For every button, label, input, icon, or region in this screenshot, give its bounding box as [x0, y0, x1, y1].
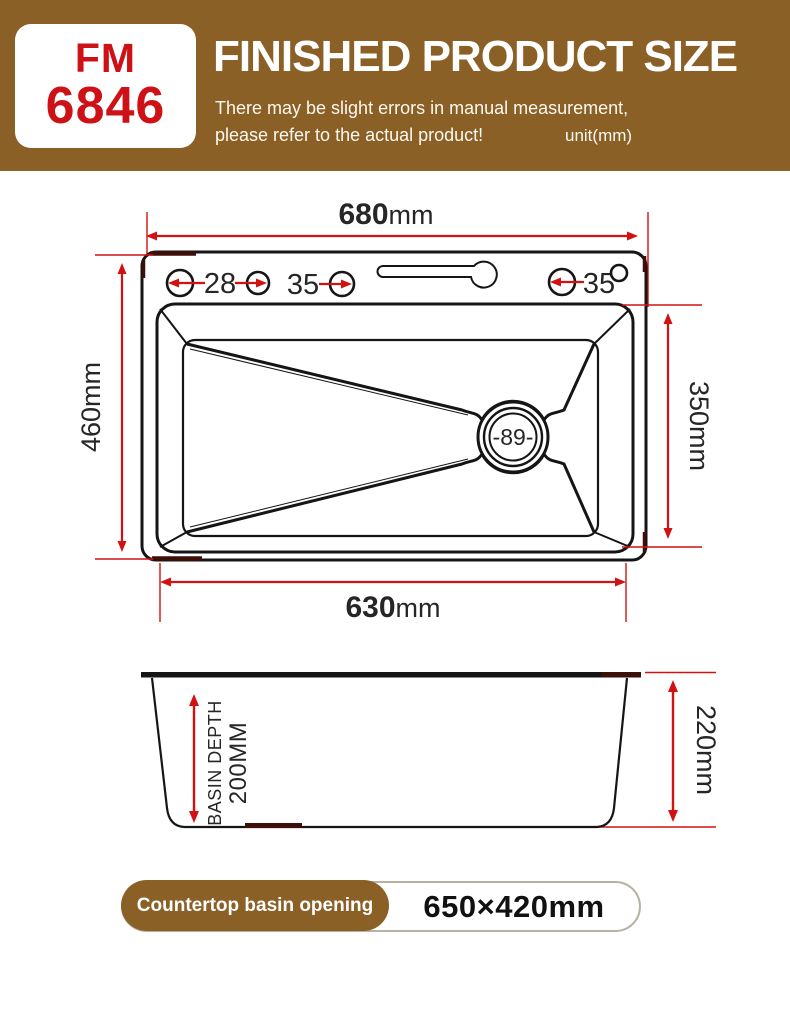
side-view-right-wall — [597, 678, 627, 827]
arrowhead-right — [615, 578, 626, 587]
side-height-dimension-label: 220mm — [691, 705, 721, 795]
model-code-number: 6846 — [46, 79, 166, 134]
top-width-dimension-label: 680mm — [338, 198, 433, 231]
page-title: FINISHED PRODUCT SIZE — [213, 32, 783, 82]
sink-dimension-diagram: 680mm 28 35 35 -89- 4 — [0, 180, 790, 880]
arrowhead-down — [668, 810, 678, 822]
arrowhead-left — [160, 578, 171, 587]
hole1-diameter-label: 28 — [204, 268, 236, 300]
arrowhead-up — [664, 313, 673, 324]
footer-pill: Countertop basin opening 650×420mm — [121, 881, 641, 932]
countertop-opening-label: Countertop basin opening — [121, 880, 389, 931]
countertop-opening-size: 650×420mm — [389, 889, 639, 925]
model-code-prefix: FM — [75, 38, 136, 79]
basin-depth-label-line1: BASIN DEPTH — [205, 700, 225, 826]
drain-diameter-label: -89- — [493, 424, 534, 450]
header-bar: FM 6846 FINISHED PRODUCT SIZE There may … — [0, 0, 790, 171]
model-badge: FM 6846 — [15, 24, 196, 148]
side-view-bottom-accent — [245, 823, 302, 828]
small-corner-hole — [611, 265, 627, 281]
basin-rim-outline — [157, 304, 633, 552]
arrowhead-up — [118, 263, 127, 274]
measurement-note-line1: There may be slight errors in manual mea… — [215, 95, 628, 122]
basin-depth-label-line2: 200MM — [225, 722, 252, 805]
arrowhead-right — [627, 232, 638, 241]
left-height-dimension-label: 460mm — [76, 362, 106, 452]
arrowhead-up — [189, 694, 199, 706]
arrowhead-down — [664, 528, 673, 539]
unit-label: unit(mm) — [565, 126, 632, 146]
bottom-width-dimension-label: 630mm — [345, 591, 440, 624]
side-view-left-wall — [152, 678, 184, 827]
hole2-diameter-label: 35 — [287, 269, 319, 301]
right-height-dimension-label: 350mm — [684, 381, 714, 471]
arrowhead-down — [118, 541, 127, 552]
side-view-rim — [141, 672, 641, 678]
side-view-rim-accent — [602, 672, 641, 678]
arrowhead-up — [668, 680, 678, 692]
arrowhead-down — [189, 811, 199, 823]
